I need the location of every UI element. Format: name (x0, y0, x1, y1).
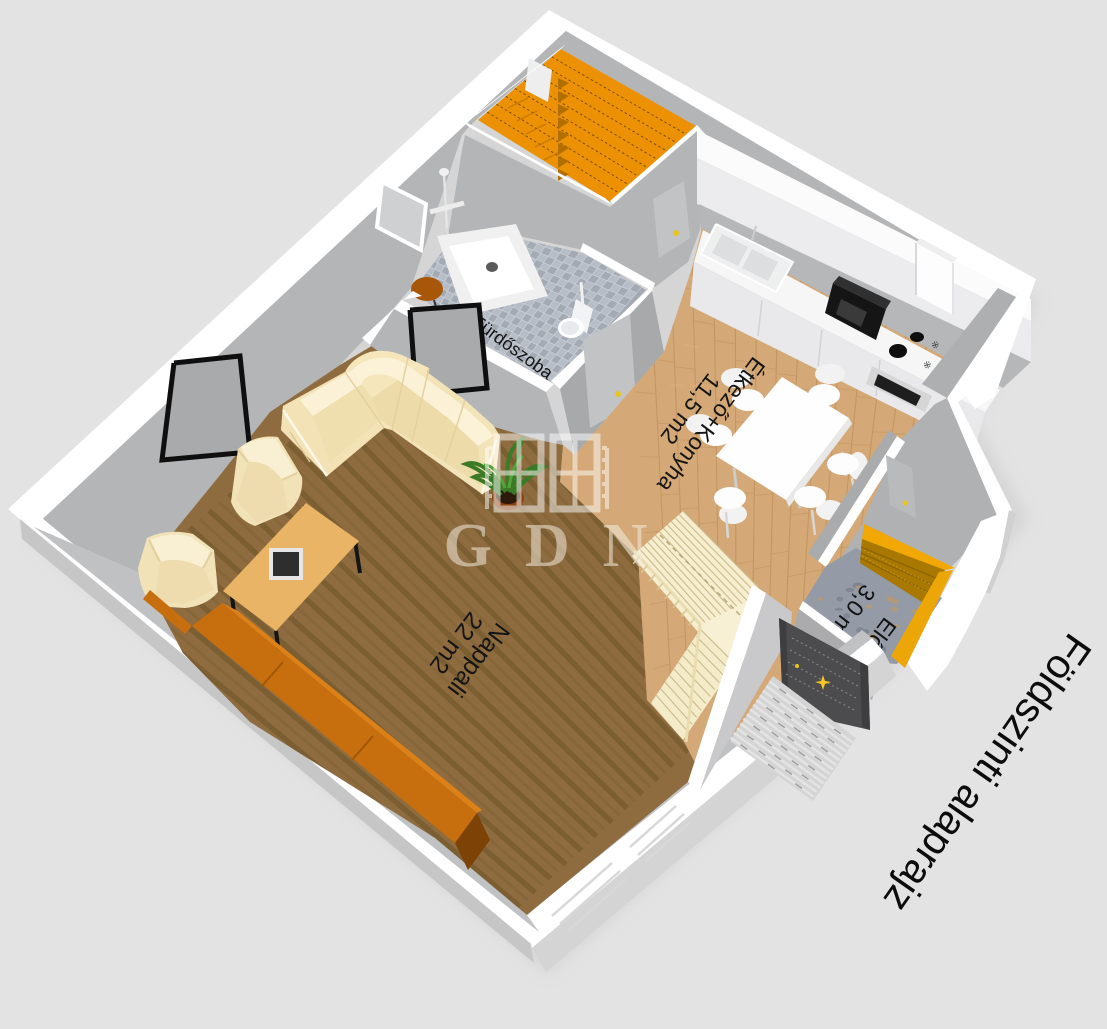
svg-text:GDN: GDN (444, 512, 681, 580)
